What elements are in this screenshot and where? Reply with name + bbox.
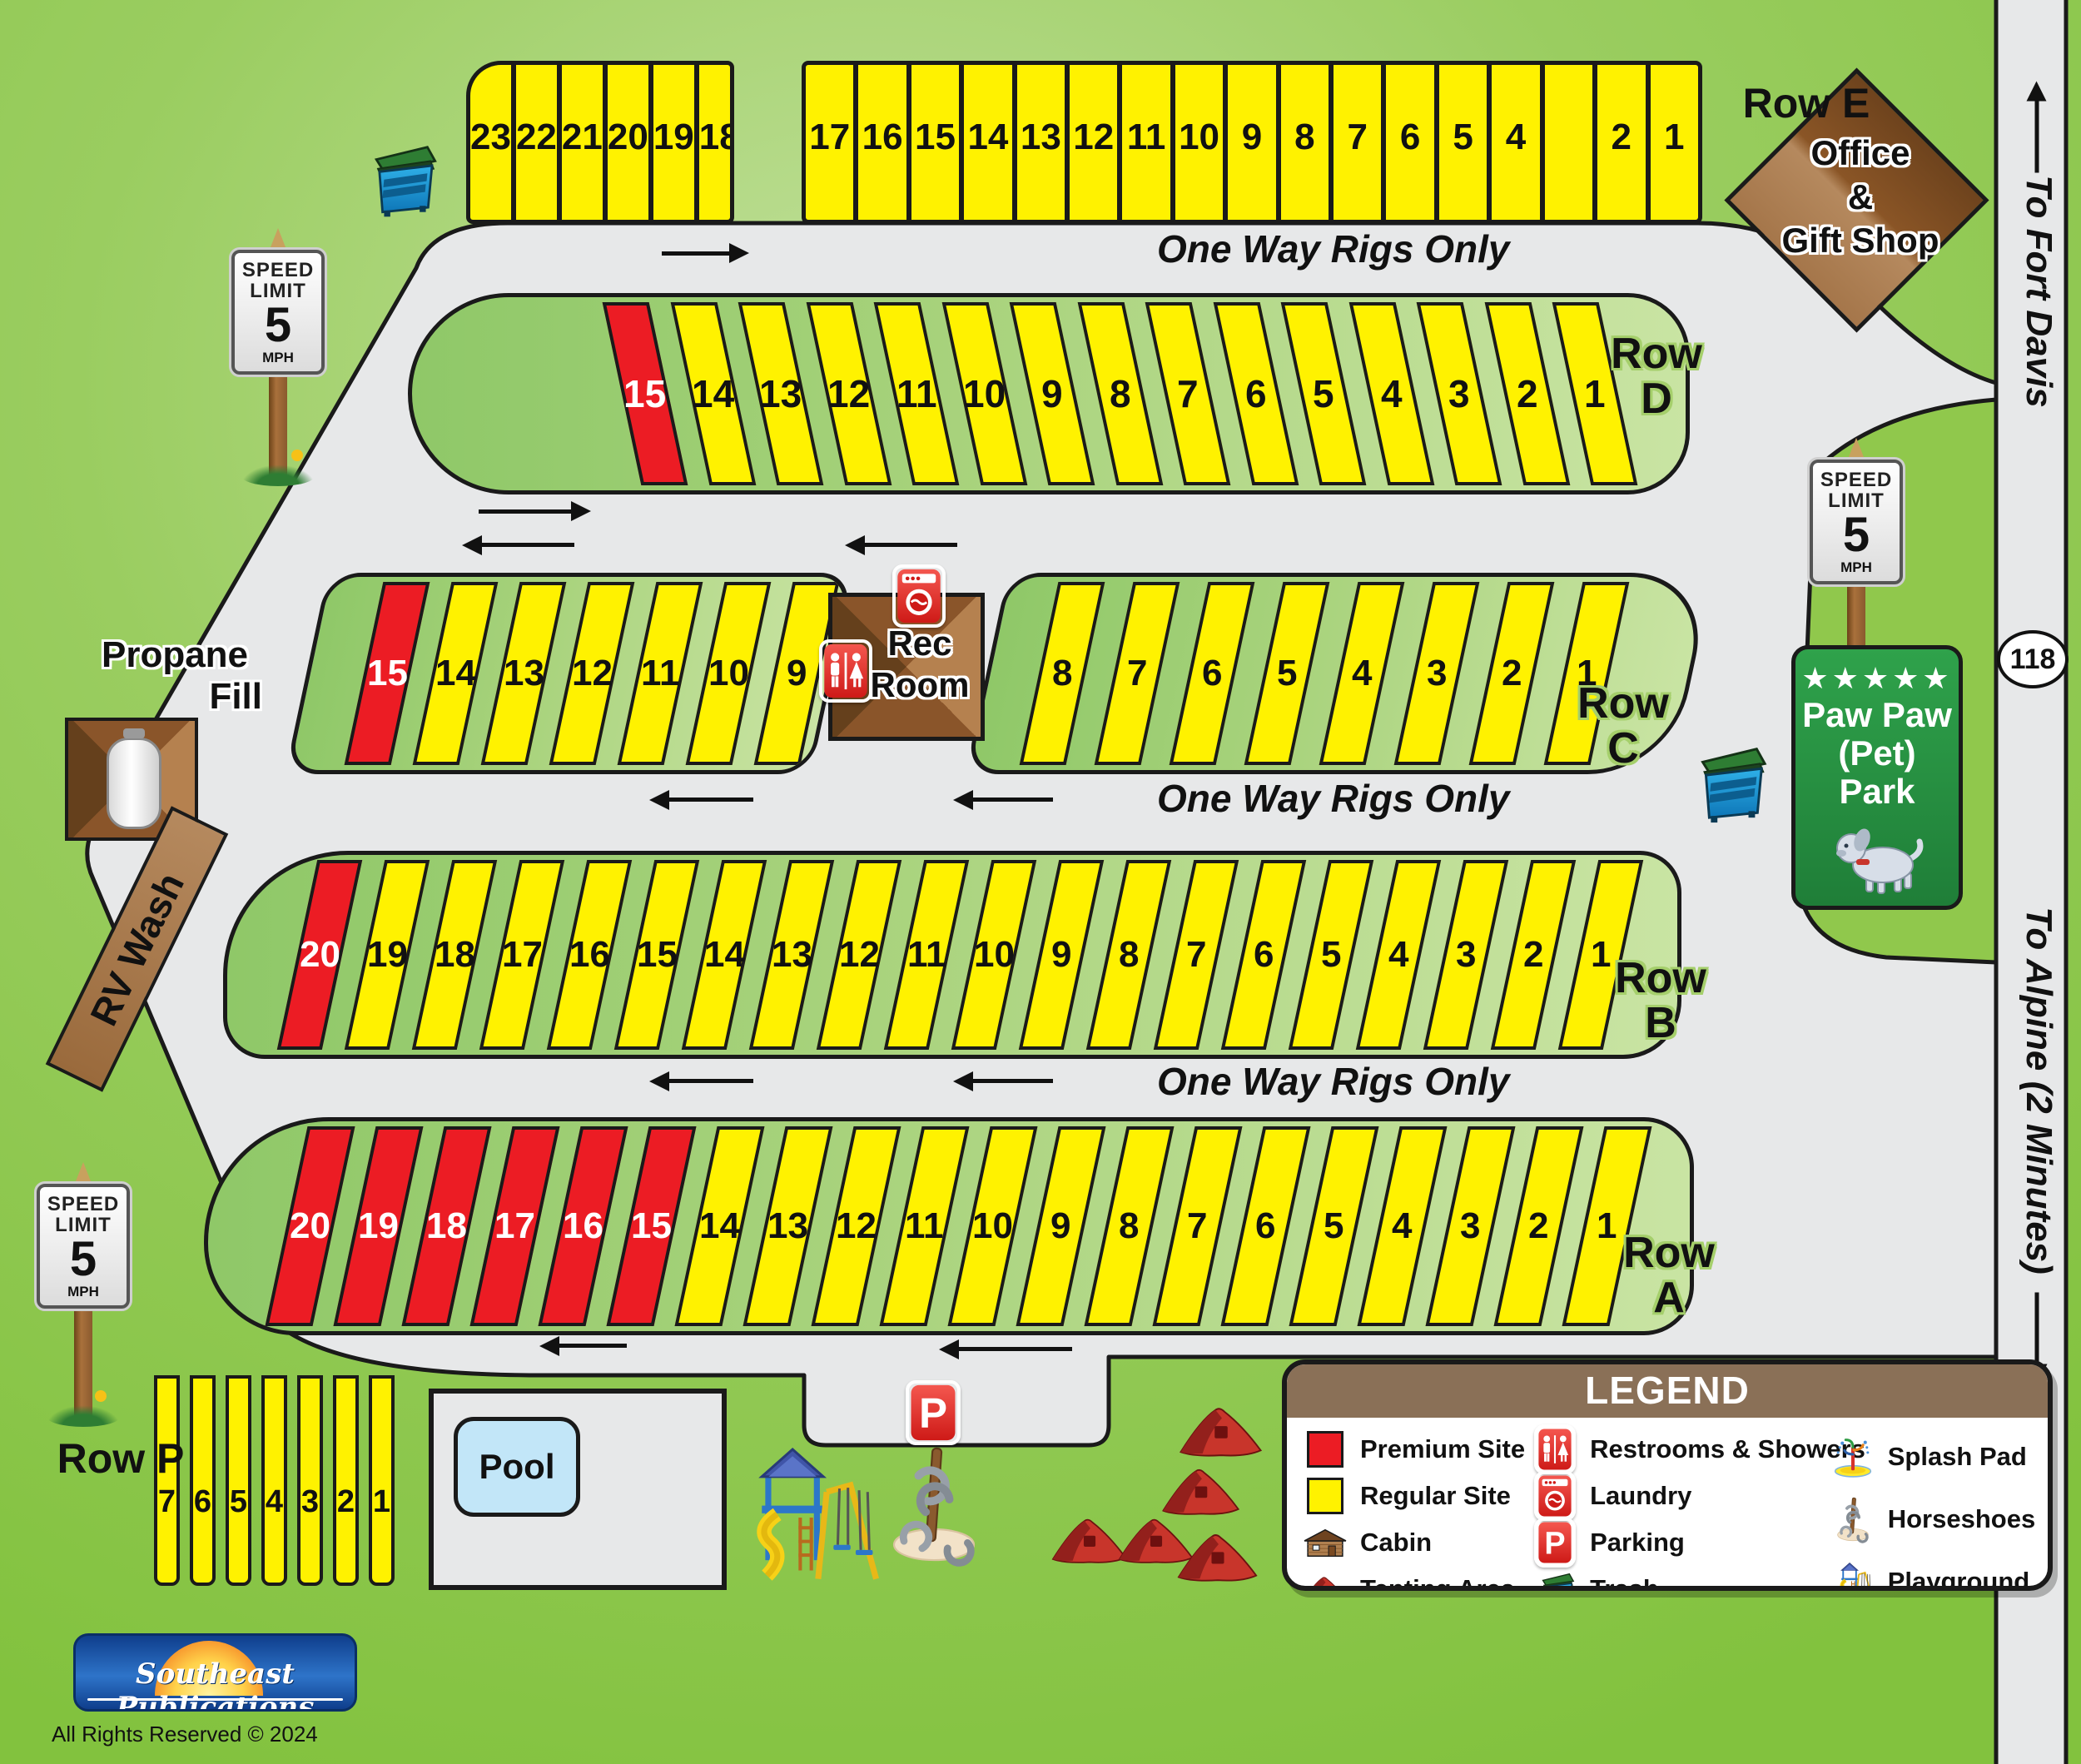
legend-column: Restrooms & ShowersLaundryParkingTrash [1532, 1426, 1823, 1591]
legend-item-premium-swatch: Premium Site [1302, 1426, 1525, 1473]
parking-icon [906, 1380, 961, 1445]
propane-label: Propane Fill [79, 634, 271, 718]
legend-item-label: Laundry [1590, 1481, 1691, 1511]
legend-item-laundry: Laundry [1532, 1473, 1823, 1519]
site-c-2: 2 [1469, 582, 1555, 765]
speed-limit-sign: SPEEDLIMIT 5MPH [231, 250, 325, 375]
site-e-2: 2 [1597, 65, 1645, 220]
one-way-arrow-left [956, 1347, 1072, 1351]
site-c-12: 12 [549, 582, 635, 765]
site-c-11: 11 [618, 582, 703, 765]
one-way-arrow-left [556, 1344, 627, 1348]
site-p-3: 3 [297, 1375, 323, 1586]
row-e-left-sites: 232221201918 [466, 61, 734, 224]
one-way-label-top: One Way Rigs Only [1157, 226, 1509, 271]
site-e-6: 6 [1386, 65, 1433, 220]
one-way-label-bottom: One Way Rigs Only [1157, 1059, 1509, 1104]
site-d-11: 11 [874, 302, 960, 485]
site-e-14: 14 [964, 65, 1011, 220]
site-unnumbered [1545, 65, 1592, 220]
site-e-11: 11 [1122, 65, 1170, 220]
legend-item-label: Cabin [1360, 1528, 1432, 1558]
site-e-10: 10 [1175, 65, 1223, 220]
site-e-7: 7 [1334, 65, 1381, 220]
site-d-12: 12 [806, 302, 892, 485]
trash-icon [1532, 1566, 1578, 1591]
site-e-16: 16 [858, 65, 906, 220]
site-c-5: 5 [1244, 582, 1330, 765]
site-c-3: 3 [1394, 582, 1480, 765]
site-p-2: 2 [333, 1375, 359, 1586]
site-p-4: 4 [261, 1375, 287, 1586]
splash-pad-icon [1830, 1434, 1876, 1480]
office-label: Office&Gift Shop [1744, 132, 1977, 263]
site-c-7: 7 [1095, 582, 1180, 765]
site-e-12: 12 [1070, 65, 1117, 220]
legend-column: Splash PadHorseshoesPlayground [1830, 1426, 2035, 1591]
site-e-18: 18 [699, 65, 734, 220]
site-c-10: 10 [686, 582, 772, 765]
site-d-5: 5 [1281, 302, 1367, 485]
site-d-8: 8 [1077, 302, 1163, 485]
site-d-13: 13 [738, 302, 824, 485]
legend-item-label: Parking [1590, 1528, 1685, 1558]
site-e-21: 21 [562, 65, 603, 220]
row-p-label: Row P [25, 1437, 216, 1480]
legend-item-regular-swatch: Regular Site [1302, 1473, 1525, 1519]
tent-icon [1302, 1566, 1348, 1591]
legend-item-cabin: Cabin [1302, 1519, 1525, 1566]
site-e-13: 13 [1017, 65, 1065, 220]
speed-limit-sign: SPEEDLIMIT 5MPH [1810, 460, 1903, 584]
row-e-right-sites: 171615141312111098765421 [802, 61, 1702, 224]
copyright-text: All Rights Reserved © 2024 [52, 1722, 318, 1747]
to-fort-davis-label: To Fort Davis [2018, 175, 2059, 408]
site-e-1: 1 [1651, 65, 1698, 220]
one-way-arrow-left [970, 798, 1053, 802]
legend-item-tent: Tenting Area [1302, 1566, 1525, 1591]
site-c-15: 15 [345, 582, 430, 765]
legend-item-trash: Trash [1532, 1566, 1823, 1591]
site-e-4: 4 [1492, 65, 1539, 220]
row-e-label: Row E [1715, 82, 1898, 125]
site-e-19: 19 [653, 65, 694, 220]
legend-item-horseshoes: Horseshoes [1830, 1496, 2035, 1543]
laundry-icon [892, 564, 946, 628]
to-fort-davis-arrow [2035, 98, 2039, 173]
site-d-2: 2 [1484, 302, 1570, 485]
propane-tank-icon [107, 738, 161, 829]
speed-limit-sign: SPEEDLIMIT 5MPH [37, 1184, 130, 1309]
pool: Pool [454, 1417, 580, 1517]
site-e-22: 22 [516, 65, 557, 220]
site-d-15: 15 [603, 302, 688, 485]
site-e-5: 5 [1439, 65, 1487, 220]
legend-item-splash-pad: Splash Pad [1830, 1434, 2035, 1480]
site-d-4: 4 [1348, 302, 1434, 485]
row-d-band: 151413121110987654321 [408, 293, 1690, 494]
trash-dumpster-icon [1703, 749, 1766, 822]
site-c-13: 13 [481, 582, 567, 765]
one-way-arrow-left [479, 543, 574, 547]
row-p-sites: 7654321 [154, 1375, 395, 1586]
row-c-label: RowC [1557, 681, 1690, 771]
one-way-arrow-right [479, 509, 574, 514]
row-a-label: RowA [1602, 1230, 1736, 1320]
row-b-label: RowB [1594, 956, 1727, 1046]
one-way-arrow-left [970, 1079, 1053, 1083]
legend: LEGEND Premium SiteRegular SiteCabinTent… [1282, 1359, 2053, 1591]
campground-map: P [0, 0, 2081, 1764]
site-e-15: 15 [911, 65, 959, 220]
site-d-6: 6 [1213, 302, 1299, 485]
row-a-band: 2019181716151413121110987654321 [204, 1117, 1694, 1335]
five-stars: ★★★★★ [1795, 661, 1959, 696]
legend-item-label: Tenting Area [1360, 1574, 1515, 1591]
dog-icon [1823, 818, 1931, 897]
site-e-23: 23 [470, 65, 511, 220]
site-d-7: 7 [1145, 302, 1231, 485]
legend-item-label: Regular Site [1360, 1481, 1511, 1511]
site-c-4: 4 [1319, 582, 1405, 765]
publisher-logo: Southeast Publications [73, 1633, 357, 1712]
laundry-icon [1532, 1473, 1578, 1519]
row-d-label: RowD [1590, 331, 1723, 421]
legend-item-parking: Parking [1532, 1519, 1823, 1566]
site-c-6: 6 [1170, 582, 1255, 765]
regular-swatch-icon [1302, 1473, 1348, 1519]
premium-swatch-icon [1302, 1426, 1348, 1473]
site-d-14: 14 [670, 302, 756, 485]
site-p-6: 6 [190, 1375, 216, 1586]
playground-icon [1830, 1558, 1876, 1591]
legend-item-playground: Playground [1830, 1558, 2035, 1591]
site-c-14: 14 [413, 582, 499, 765]
site-p-1: 1 [369, 1375, 395, 1586]
legend-item-label: Restrooms & Showers [1590, 1434, 1865, 1464]
legend-column: Premium SiteRegular SiteCabinTenting Are… [1302, 1426, 1525, 1591]
one-way-arrow-left [666, 798, 753, 802]
to-alpine-label: To Alpine (2 Minutes) [2018, 907, 2059, 1275]
site-c-8: 8 [1020, 582, 1105, 765]
rec-room-label: RecRoom [857, 623, 982, 707]
one-way-arrow-right [662, 251, 733, 256]
one-way-arrow-left [666, 1079, 753, 1083]
site-d-3: 3 [1417, 302, 1502, 485]
to-alpine-arrow [2035, 1293, 2039, 1368]
parking-icon [1532, 1519, 1578, 1566]
site-e-17: 17 [806, 65, 853, 220]
site-p-5: 5 [226, 1375, 251, 1586]
cabin-icon [1302, 1519, 1348, 1566]
pet-park-sign: ★★★★★ Paw Paw(Pet) Park [1791, 645, 1963, 910]
horseshoes-icon [1830, 1496, 1876, 1543]
legend-item-label: Trash [1590, 1574, 1659, 1591]
site-e-9: 9 [1228, 65, 1275, 220]
trash-dumpster-icon [376, 147, 435, 217]
site-d-10: 10 [941, 302, 1027, 485]
site-e-20: 20 [608, 65, 648, 220]
legend-item-label: Splash Pad [1888, 1442, 2027, 1472]
highway-118-badge: 118 [1997, 630, 2069, 688]
site-d-9: 9 [1010, 302, 1095, 485]
restrooms-icon [1532, 1426, 1578, 1473]
one-way-arrow-left [862, 543, 957, 547]
legend-item-label: Premium Site [1360, 1434, 1525, 1464]
one-way-label-middle: One Way Rigs Only [1157, 776, 1509, 821]
row-c-left-band: 1514131211109 [285, 573, 853, 774]
legend-title: LEGEND [1287, 1364, 2048, 1418]
legend-item-restrooms: Restrooms & Showers [1532, 1426, 1823, 1473]
row-b-band: 2019181716151413121110987654321 [223, 851, 1681, 1059]
site-e-8: 8 [1281, 65, 1329, 220]
legend-item-label: Playground [1888, 1567, 2030, 1591]
legend-item-label: Horseshoes [1888, 1504, 2035, 1534]
